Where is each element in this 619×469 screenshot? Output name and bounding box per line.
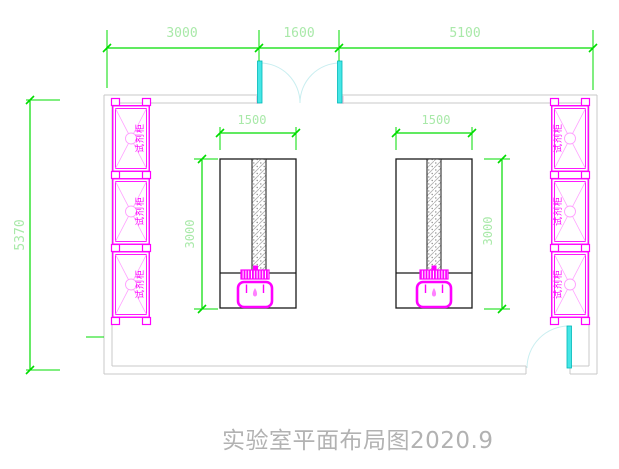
cabinet-left-1	[113, 106, 150, 172]
door-leaf-icon	[567, 326, 572, 368]
cabinet-left-3	[113, 252, 150, 318]
bench-right	[396, 159, 472, 308]
cabinet-right-2	[552, 179, 589, 245]
reagent-shelf-strip	[252, 159, 266, 273]
wall-inner	[112, 103, 589, 366]
top-double-door	[258, 61, 343, 103]
cabinet-left-2	[113, 179, 150, 245]
cabinet-right-1	[552, 106, 589, 172]
reagent-shelf-strip	[427, 159, 441, 273]
wall-outline	[104, 95, 597, 374]
dimension-left-wall	[26, 96, 104, 374]
door-swing-arc	[260, 63, 300, 103]
bottom-door	[527, 326, 572, 368]
door-leaf-icon	[258, 61, 263, 103]
sink-icon	[238, 266, 272, 308]
dimension-bench-left-depth	[194, 155, 218, 313]
cabinet-column-left	[112, 99, 151, 325]
sink-icon	[417, 266, 451, 308]
dimension-bench-right-width	[392, 127, 476, 150]
door-swing-arc	[300, 63, 340, 103]
dimension-top	[103, 30, 597, 90]
plan-drawing	[0, 0, 619, 469]
floor-plan-canvas: 3000 1600 5100 5370 1500 3000 1500 3000 …	[0, 0, 619, 469]
door-swing-arc	[527, 326, 569, 368]
cabinet-column-right	[551, 99, 590, 325]
cabinet-right-3	[552, 252, 589, 318]
door-leaf-icon	[338, 61, 343, 103]
wall-outer	[104, 95, 597, 374]
dimension-bench-left-width	[216, 127, 300, 150]
bench-left	[220, 159, 296, 308]
dimension-bench-right-depth	[484, 155, 510, 313]
